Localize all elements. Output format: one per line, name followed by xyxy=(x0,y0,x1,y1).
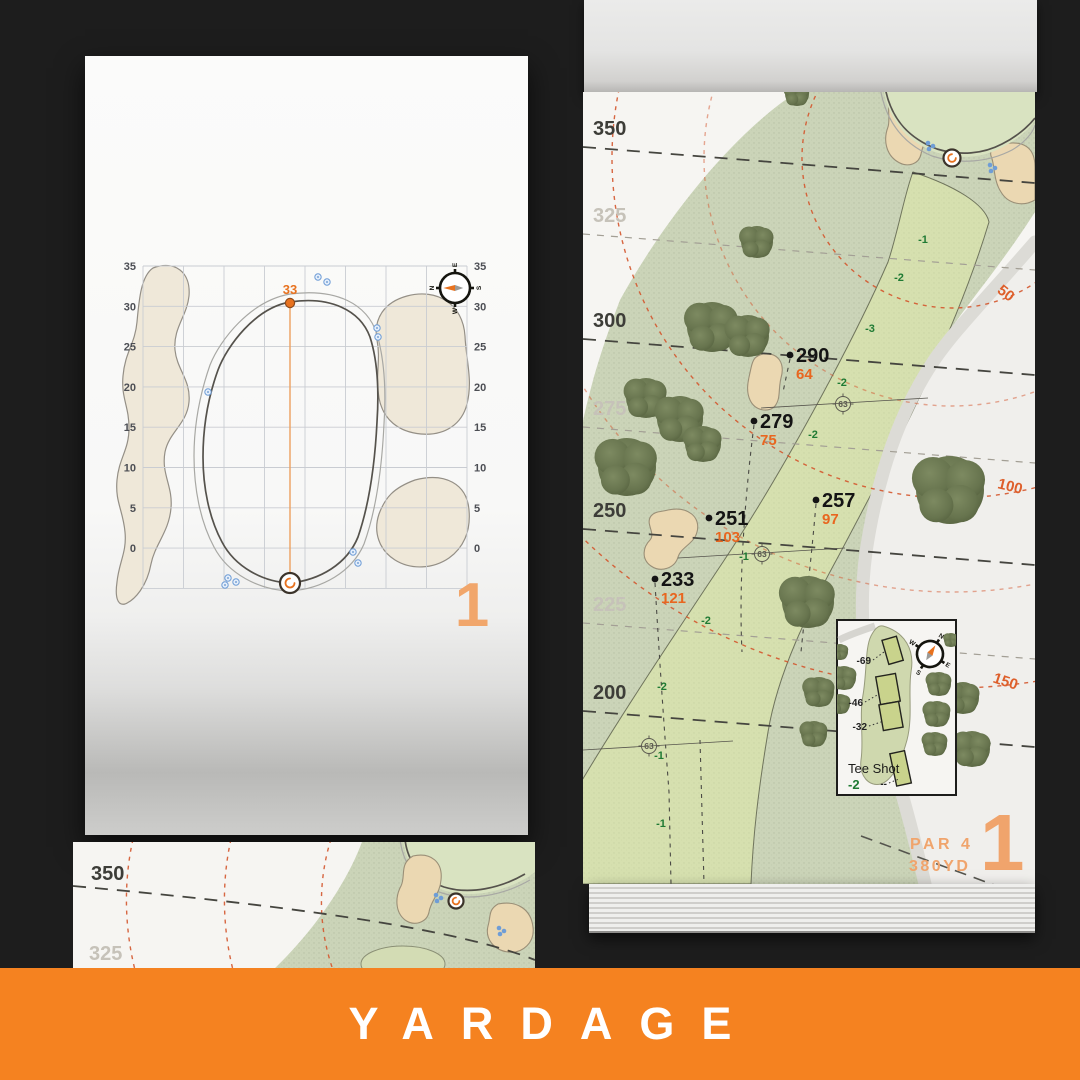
bunker-shapes xyxy=(116,266,469,605)
compass-letter: W xyxy=(452,307,459,314)
elevation-label: -3 xyxy=(865,323,875,335)
tree-icon xyxy=(943,633,958,647)
sprinkler-dots xyxy=(205,274,381,588)
hole-map-partial: 350325 xyxy=(73,842,535,970)
pin-circle xyxy=(944,150,961,167)
y-axis-tick: 20 xyxy=(124,382,136,394)
tree-canopy xyxy=(785,601,811,627)
elevation-label: -2 xyxy=(701,615,711,627)
sprinkler-dot xyxy=(439,896,444,901)
tree-canopy xyxy=(743,241,759,257)
remaining-distance: 97 xyxy=(822,511,839,528)
sprinkler-dot xyxy=(988,163,993,168)
distance-line-label: 350 xyxy=(593,118,626,140)
compass-tick xyxy=(916,645,919,647)
tree-icon xyxy=(926,672,952,696)
y-axis-tick: 30 xyxy=(474,301,486,313)
sprinkler-dot xyxy=(931,144,936,149)
remaining-distance: 64 xyxy=(796,366,813,383)
green-detail-map: 35302520151050 35302520151050 33 NESW 1 xyxy=(115,252,495,642)
elevation-label: -1 xyxy=(918,234,928,246)
carry-marker-dot xyxy=(652,576,659,583)
tee-offset-value: -69 xyxy=(857,656,872,667)
y-axis-tick: 15 xyxy=(124,422,136,434)
sprinkler-head-value: 63 xyxy=(838,399,848,409)
pin-marker xyxy=(944,150,961,167)
bunker-shape xyxy=(748,354,783,410)
elevation-label: -1 xyxy=(656,818,666,830)
bunker-shape xyxy=(116,266,189,605)
carry-distance: 233 xyxy=(661,569,694,591)
distance-line-label: 225 xyxy=(593,594,626,616)
y-axis-tick: 0 xyxy=(474,543,480,555)
green-map-page: 35302520151050 35302520151050 33 NESW 1 xyxy=(85,56,528,835)
distance-line-label: 300 xyxy=(593,310,626,332)
compass-tick xyxy=(937,640,939,643)
y-axis-labels-right: 35302520151050 xyxy=(474,261,486,555)
par-label: PAR 4 xyxy=(910,836,973,853)
y-axis-tick: 15 xyxy=(474,422,486,434)
flipped-page-edge xyxy=(584,0,1037,92)
tree-canopy xyxy=(928,683,940,695)
tee-box xyxy=(876,673,901,704)
tree-icon xyxy=(799,721,827,747)
sprinkler-head-dot xyxy=(326,281,328,283)
hole-number: 1 xyxy=(455,571,489,640)
y-axis-tick: 35 xyxy=(474,261,486,273)
sprinkler-dot xyxy=(498,932,503,937)
sprinkler-head-dot xyxy=(352,551,354,553)
y-axis-tick: 25 xyxy=(474,342,486,354)
tree-canopy xyxy=(601,466,630,495)
yardage-label: 380YD xyxy=(909,858,970,875)
bottom-left-page: 350325 xyxy=(73,842,535,970)
tee-offset-value: -46 xyxy=(849,698,864,709)
tee-shot-inset: -69-46-32-- NESW Tee Shot -2 xyxy=(829,620,963,795)
sprinkler-head-dot xyxy=(376,327,378,329)
sprinkler-dot xyxy=(497,926,502,931)
sprinkler-head-value: 63 xyxy=(757,549,767,559)
sprinkler-dot xyxy=(989,169,994,174)
distance-line-label: 200 xyxy=(593,682,626,704)
tree-icon xyxy=(739,226,773,258)
bunker-shape xyxy=(377,478,470,567)
elevation-label: -1 xyxy=(654,750,664,762)
pin-marker xyxy=(280,573,300,593)
tree-icon xyxy=(912,456,985,524)
elevation-label: -2 xyxy=(894,272,904,284)
tree-canopy xyxy=(806,691,821,706)
sprinkler-head-dot xyxy=(357,562,359,564)
tree-canopy xyxy=(945,640,952,647)
tree-canopy xyxy=(659,418,682,441)
tree-icon xyxy=(922,701,950,727)
bunker-shape xyxy=(487,903,533,952)
pin-circle xyxy=(449,894,464,909)
tree-icon xyxy=(802,677,834,707)
tree-canopy xyxy=(802,733,815,746)
hole-map: 50100150 350325300275250225200 636363 29… xyxy=(583,92,1035,884)
remaining-distance: 103 xyxy=(715,529,740,546)
carry-distance: 251 xyxy=(715,508,748,530)
distance-line-label: 325 xyxy=(593,205,626,227)
tree-canopy xyxy=(924,743,936,755)
y-axis-tick: 0 xyxy=(130,543,136,555)
pin-marker xyxy=(280,573,300,593)
y-axis-tick: 25 xyxy=(124,342,136,354)
tree-canopy xyxy=(687,443,705,461)
pin-depth-label: 33 xyxy=(283,282,297,297)
sprinkler-head-dot xyxy=(377,336,379,338)
sprinkler-dot xyxy=(434,893,439,898)
hole-number: 1 xyxy=(980,798,1025,884)
page-stack-edge xyxy=(589,884,1035,933)
pin-marker xyxy=(944,150,961,167)
distance-line-label: 250 xyxy=(593,500,626,522)
y-axis-tick: 30 xyxy=(124,301,136,313)
y-axis-tick: 5 xyxy=(474,503,480,515)
carry-marker-dot xyxy=(706,515,713,522)
remaining-distance: 121 xyxy=(661,590,686,607)
tree-icon xyxy=(724,315,769,357)
sprinkler-dot xyxy=(435,899,440,904)
tee-inset-title: Tee Shot xyxy=(848,761,900,776)
elevation-label: -1 xyxy=(739,551,749,563)
tee-offset-value: -32 xyxy=(853,722,868,733)
carry-marker-dot xyxy=(787,352,794,359)
sprinkler-head-value: 63 xyxy=(644,741,654,751)
tree-canopy xyxy=(786,93,798,105)
distance-line-label: 350 xyxy=(91,863,124,885)
tree-canopy xyxy=(925,713,938,726)
tree-icon xyxy=(595,438,657,496)
tree-icon xyxy=(683,426,722,462)
y-axis-tick: 10 xyxy=(124,463,136,475)
yardage-book-mockup: 35302520151050 35302520151050 33 NESW 1 xyxy=(0,0,1080,1080)
compass-letter: N xyxy=(429,285,436,290)
pin-circle xyxy=(280,573,300,593)
hole-map-page: 50100150 350325300275250225200 636363 29… xyxy=(583,92,1035,884)
tree-icon xyxy=(952,731,991,767)
tree-canopy xyxy=(919,488,953,522)
tree-icon xyxy=(922,732,948,756)
y-axis-tick: 20 xyxy=(474,382,486,394)
elevation-label: -2 xyxy=(657,681,667,693)
compass-tick xyxy=(941,661,944,663)
y-axis-tick: 5 xyxy=(130,503,136,515)
sprinkler-head-dot xyxy=(235,581,237,583)
tree-icon xyxy=(779,576,835,628)
tree-canopy xyxy=(956,748,974,766)
carry-marker-dot xyxy=(751,418,758,425)
elevation-label: -2 xyxy=(808,429,818,441)
carry-distance: 290 xyxy=(796,345,829,367)
carry-distance: 257 xyxy=(822,490,855,512)
back-edge-marker xyxy=(285,298,294,307)
compass-letter: E xyxy=(452,262,459,267)
compass-letter: S xyxy=(476,285,483,290)
tree-canopy xyxy=(729,335,750,356)
elevation-label: -2 xyxy=(837,377,847,389)
yardage-banner: YARDAGE xyxy=(0,968,1080,1080)
sprinkler-dot xyxy=(502,929,507,934)
banner-title: YARDAGE xyxy=(349,998,759,1050)
sprinkler-head-dot xyxy=(207,391,209,393)
carry-marker-dot xyxy=(813,497,820,504)
tree-canopy xyxy=(628,397,648,417)
sprinkler-dot xyxy=(993,166,998,171)
pin-marker xyxy=(449,894,464,909)
tree-canopy xyxy=(690,326,715,351)
pin-marker xyxy=(449,894,464,909)
sprinkler-head-dot xyxy=(224,584,226,586)
carry-distance: 279 xyxy=(760,411,793,433)
distance-line-label: 275 xyxy=(593,398,626,420)
compass-tick xyxy=(921,665,923,668)
tee-inset-elevation: -2 xyxy=(848,777,860,792)
sprinkler-head-dot xyxy=(317,276,319,278)
tee-box xyxy=(879,701,903,730)
y-axis-tick: 35 xyxy=(124,261,136,273)
y-axis-tick: 10 xyxy=(474,463,486,475)
remaining-distance: 75 xyxy=(760,432,777,449)
sprinkler-dot xyxy=(927,147,932,152)
sprinkler-dot xyxy=(926,141,931,146)
sprinkler-head-dot xyxy=(227,577,229,579)
distance-line-label: 325 xyxy=(89,943,122,965)
tee-offset-value: -- xyxy=(880,779,887,790)
